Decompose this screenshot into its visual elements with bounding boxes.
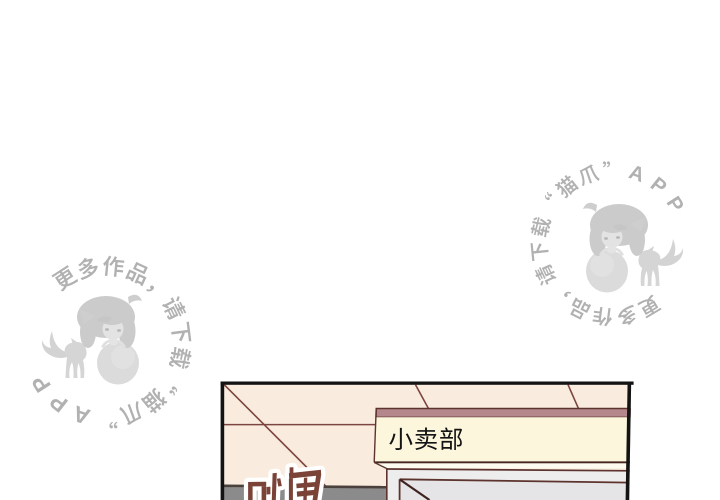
svg-text:A: A	[626, 161, 647, 187]
svg-text:P: P	[45, 388, 72, 417]
svg-text:P: P	[662, 193, 688, 216]
svg-text:A: A	[70, 401, 93, 430]
svg-text:P: P	[646, 173, 670, 199]
svg-text:P: P	[27, 371, 56, 397]
